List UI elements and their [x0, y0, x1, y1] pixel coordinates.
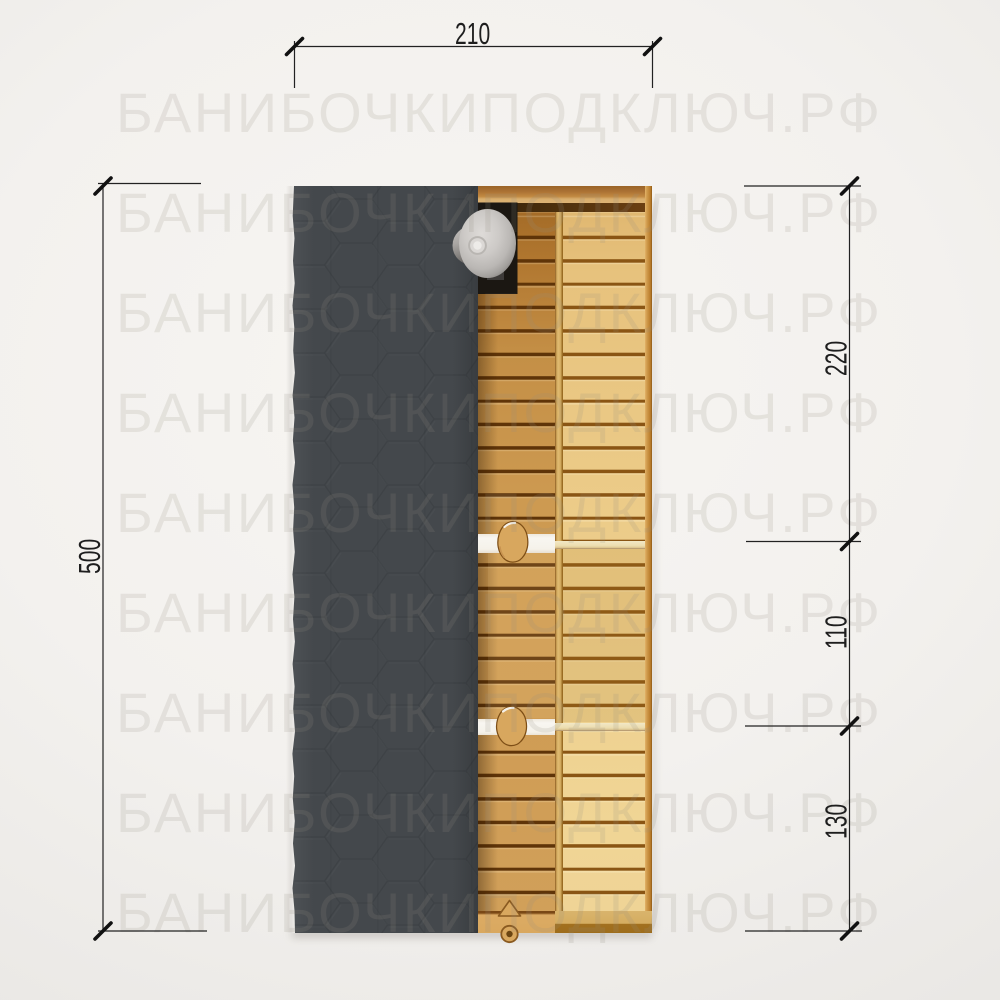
svg-text:220: 220 — [818, 341, 853, 376]
svg-text:500: 500 — [72, 539, 107, 574]
svg-text:130: 130 — [818, 804, 853, 839]
svg-text:210: 210 — [455, 16, 490, 51]
svg-text:110: 110 — [818, 615, 853, 649]
